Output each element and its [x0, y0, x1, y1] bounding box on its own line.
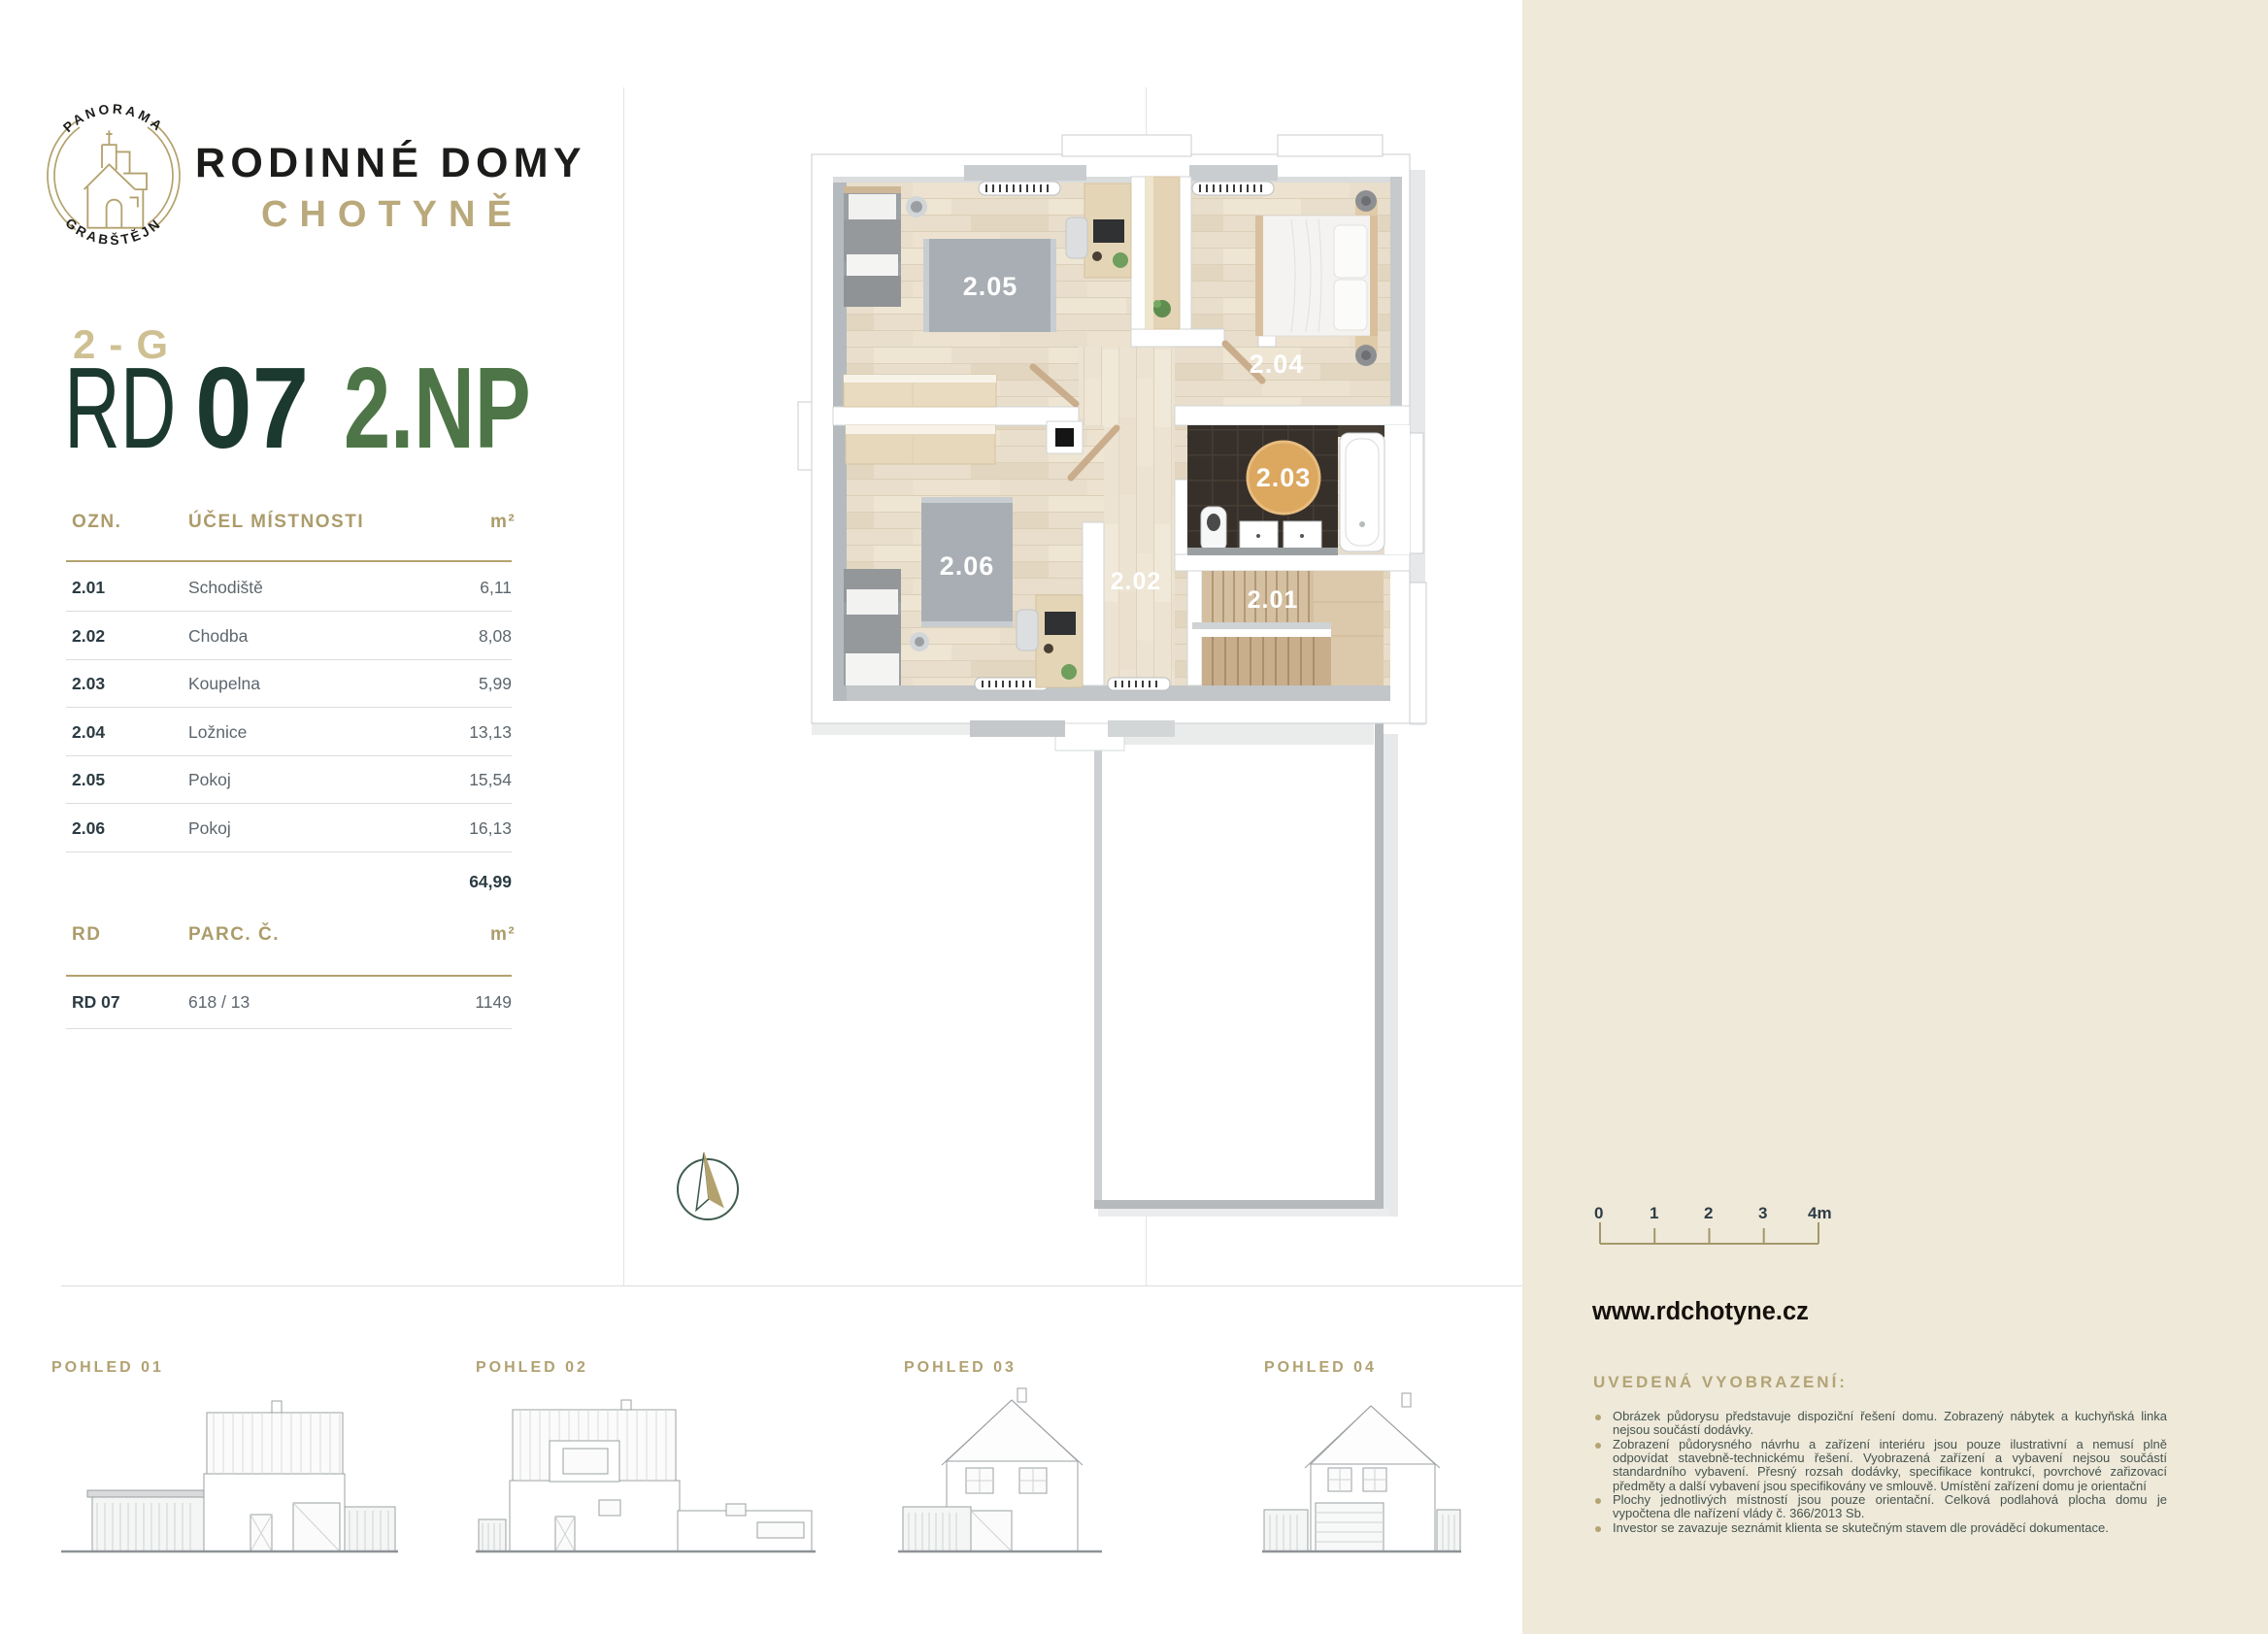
svg-text:2.02: 2.02 [1111, 568, 1162, 595]
svg-text:2.01: 2.01 [1248, 586, 1299, 614]
svg-text:GRABŠTĚJN: GRABŠTĚJN [62, 216, 164, 248]
svg-text:2.06: 2.06 [940, 551, 995, 581]
svg-text:2.05: 2.05 [963, 272, 1018, 301]
svg-text:2.04: 2.04 [1250, 350, 1305, 379]
svg-text:2.03: 2.03 [1256, 463, 1312, 492]
